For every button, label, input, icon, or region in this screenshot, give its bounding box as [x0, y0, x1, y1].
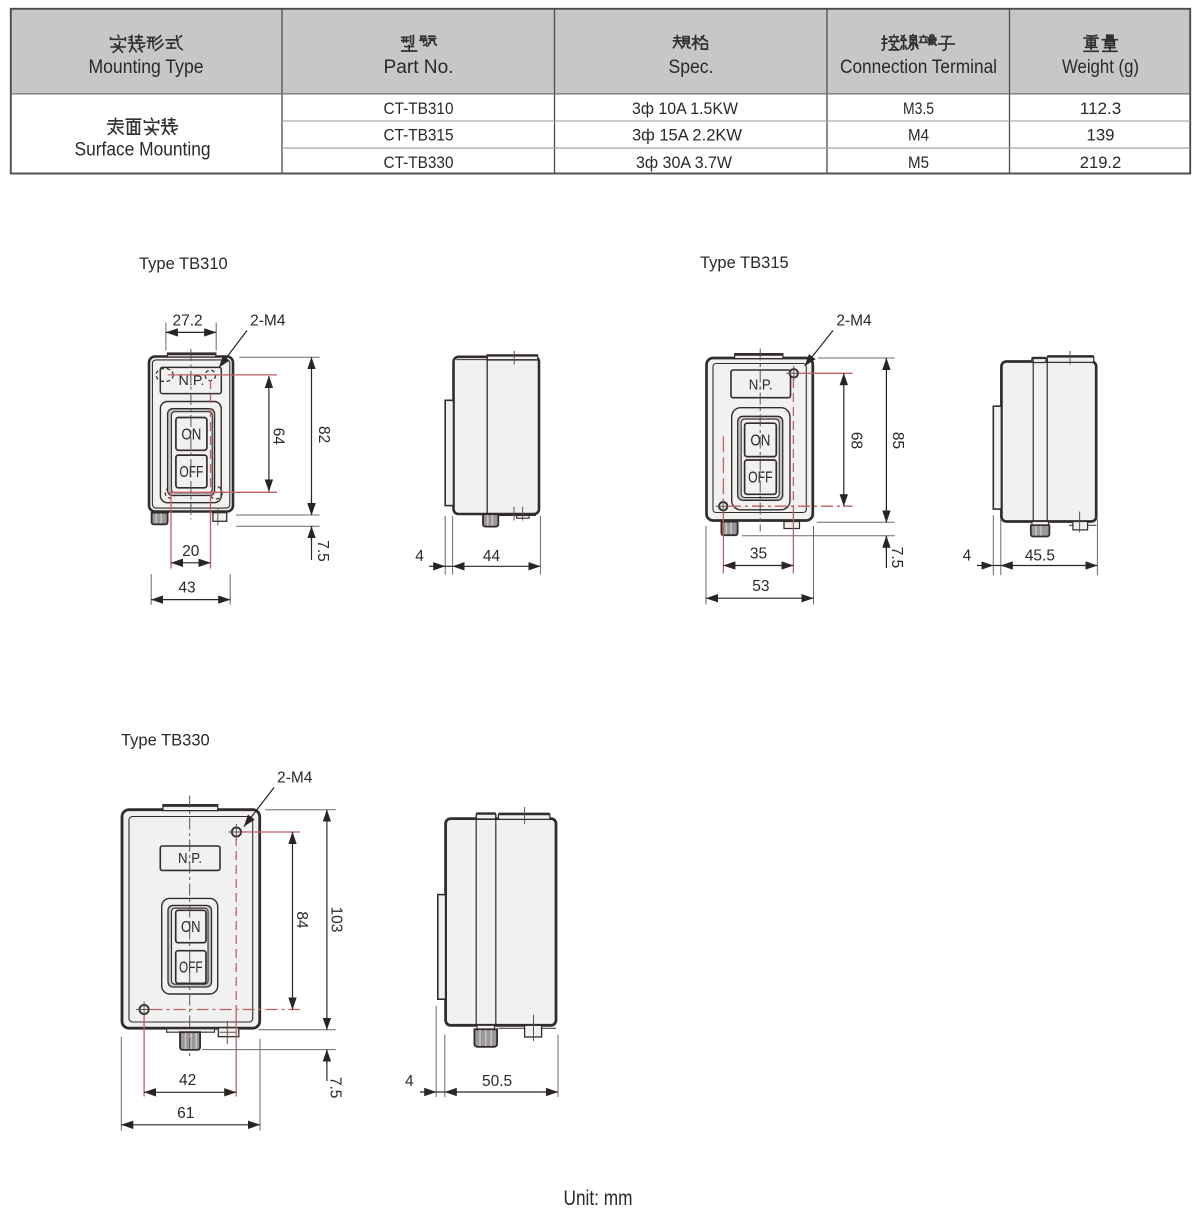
svg-text:Surface Mounting: Surface Mounting [75, 140, 211, 161]
svg-text:M3.5: M3.5 [903, 100, 934, 118]
svg-text:68: 68 [847, 432, 864, 449]
svg-text:CT-TB315: CT-TB315 [384, 127, 454, 145]
svg-text:2-M4: 2-M4 [277, 769, 313, 786]
svg-text:OFF: OFF [179, 464, 203, 481]
svg-text:Mounting Type: Mounting Type [89, 57, 204, 78]
svg-text:CT-TB310: CT-TB310 [384, 100, 454, 118]
svg-text:219.2: 219.2 [1080, 154, 1122, 172]
svg-text:35: 35 [750, 546, 767, 563]
svg-text:Connection Terminal: Connection Terminal [840, 57, 997, 78]
svg-text:Unit: mm: Unit: mm [564, 1187, 633, 1210]
svg-text:64: 64 [269, 428, 286, 446]
svg-text:139: 139 [1087, 127, 1115, 145]
svg-text:4: 4 [405, 1073, 414, 1090]
svg-text:82: 82 [315, 426, 332, 443]
svg-text:112.3: 112.3 [1080, 100, 1122, 118]
svg-text:M4: M4 [908, 127, 929, 145]
svg-text:53: 53 [752, 578, 769, 595]
svg-text:3ф 15A 2.2KW: 3ф 15A 2.2KW [632, 127, 743, 145]
svg-text:Type TB330: Type TB330 [121, 732, 210, 750]
svg-text:M5: M5 [908, 154, 929, 172]
svg-text:85: 85 [889, 432, 906, 449]
svg-text:50.5: 50.5 [482, 1073, 512, 1090]
svg-text:27.2: 27.2 [173, 312, 203, 329]
svg-text:3ф 10A 1.5KW: 3ф 10A 1.5KW [632, 100, 739, 118]
svg-text:84: 84 [293, 911, 310, 929]
svg-text:45.5: 45.5 [1025, 548, 1055, 565]
svg-text:Part No.: Part No. [384, 57, 454, 78]
svg-text:7.5: 7.5 [326, 1077, 343, 1099]
svg-text:2-M4: 2-M4 [836, 312, 872, 329]
svg-text:Type TB315: Type TB315 [700, 254, 789, 272]
svg-text:OFF: OFF [179, 960, 203, 977]
svg-text:Spec.: Spec. [669, 57, 714, 78]
svg-text:CT-TB330: CT-TB330 [384, 154, 454, 172]
svg-text:2-M4: 2-M4 [250, 312, 286, 329]
svg-text:44: 44 [483, 548, 501, 565]
svg-text:42: 42 [179, 1072, 196, 1089]
svg-text:43: 43 [178, 580, 195, 597]
svg-text:3ф 30A 3.7W: 3ф 30A 3.7W [636, 154, 733, 172]
svg-text:ON: ON [181, 919, 201, 936]
svg-text:Type TB310: Type TB310 [139, 255, 228, 273]
svg-text:7.5: 7.5 [314, 540, 331, 562]
svg-text:61: 61 [177, 1105, 194, 1122]
svg-text:103: 103 [328, 907, 345, 933]
svg-text:4: 4 [415, 548, 424, 565]
svg-text:20: 20 [182, 543, 200, 560]
svg-text:Weight (g): Weight (g) [1062, 57, 1139, 78]
svg-text:7.5: 7.5 [888, 547, 905, 569]
svg-text:4: 4 [963, 548, 972, 565]
